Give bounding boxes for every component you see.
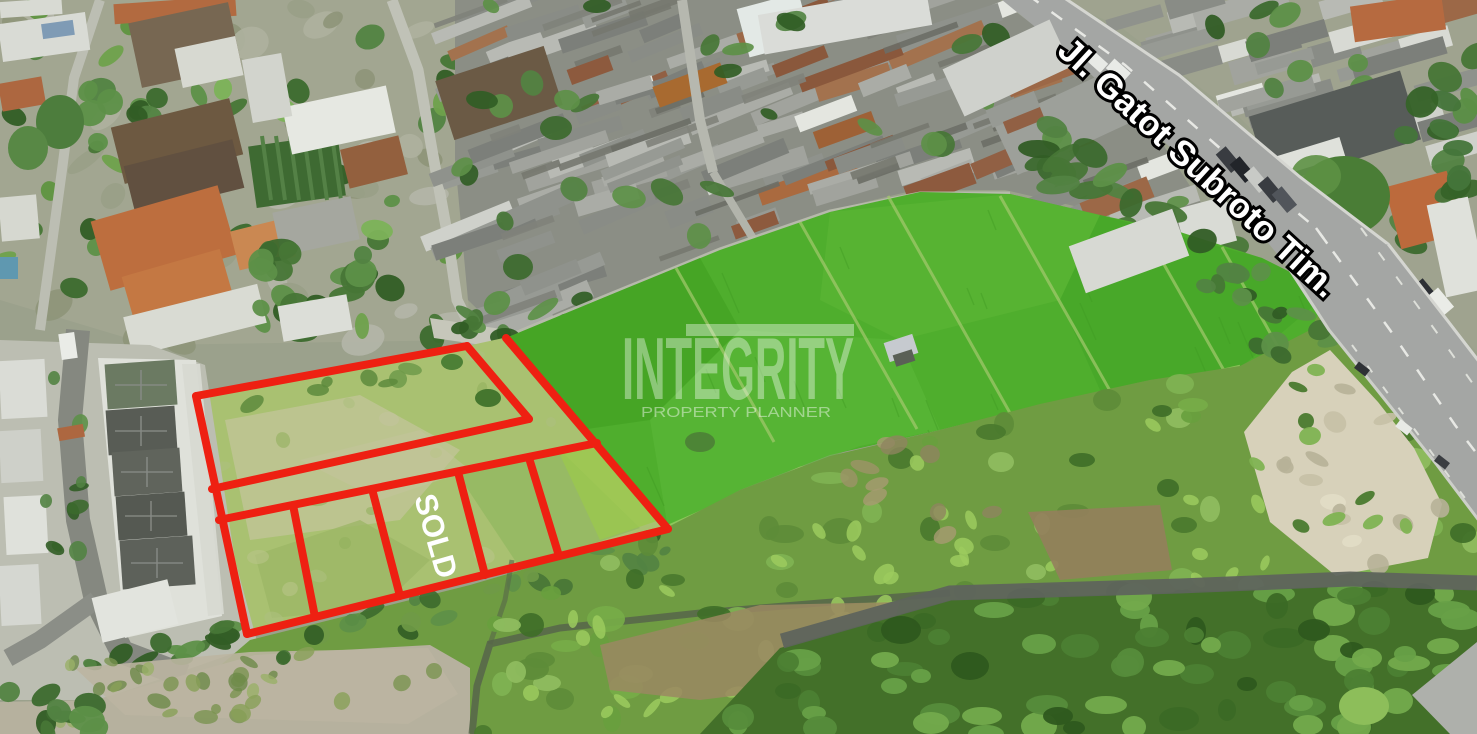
svg-text:PROPERTY PLANNER: PROPERTY PLANNER [641, 404, 831, 421]
